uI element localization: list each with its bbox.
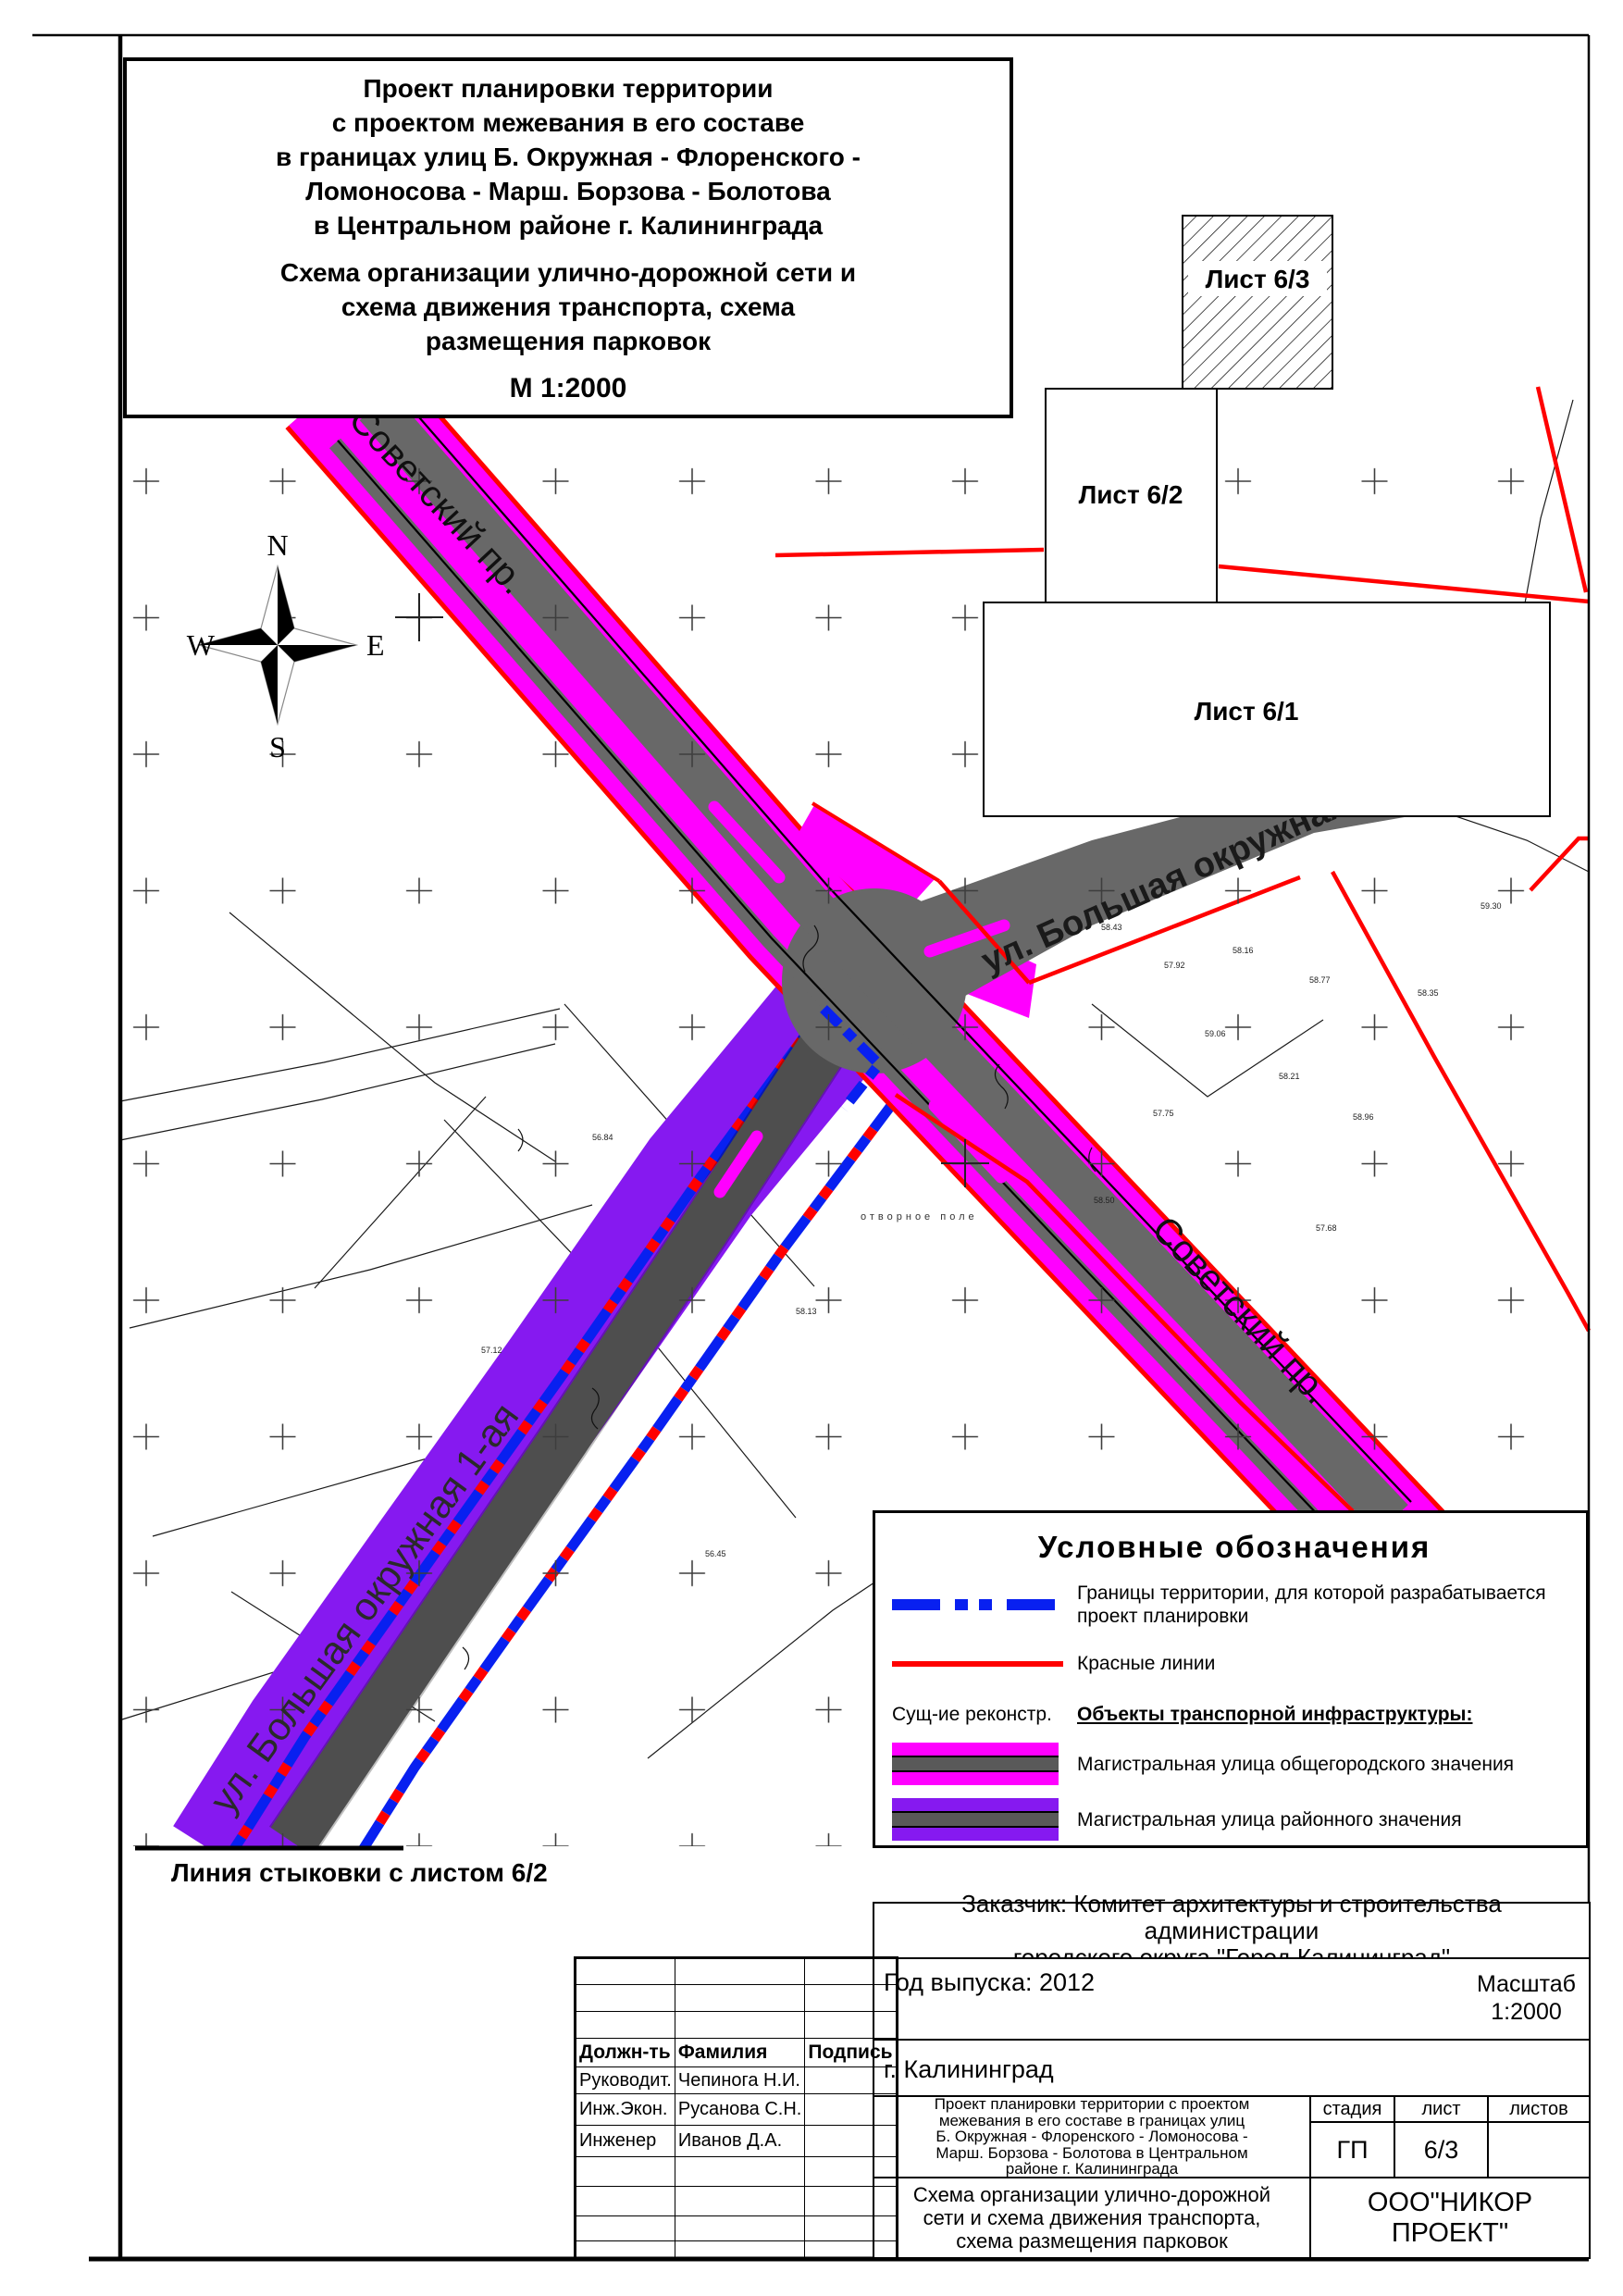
compass-e: E [366, 628, 385, 662]
planning-sheet: { "header": { "lines": [ "Проект планиро… [0, 0, 1623, 2296]
sheet-62-label: Лист 6/2 [1079, 480, 1183, 509]
red-line-symbol [892, 1659, 1077, 1669]
elevation-label: 57.68 [1316, 1223, 1337, 1233]
elevation-label: 58.35 [1418, 988, 1439, 998]
legend-item-redlines: Красные линии [892, 1652, 1569, 1675]
title-line: Ломоносова - Марш. Борзова - Болотова [305, 174, 831, 208]
project-line: Проект планировки территории с проектом [935, 2096, 1250, 2113]
personnel-row: Руководит. Чепинога Н.И. [576, 2067, 898, 2094]
elevation-label: 59.30 [1481, 901, 1502, 911]
listov-value [1487, 2121, 1591, 2178]
map-scale-label: М 1:2000 [510, 373, 627, 404]
title-line: в Центральном районе г. Калининграда [314, 208, 823, 242]
col-signature: Подпись [805, 2039, 897, 2067]
elevation-label: 58.96 [1353, 1112, 1374, 1122]
stadia-header: стадия [1309, 2095, 1395, 2123]
scheme-line: Схема организации улично-дорожной [913, 2183, 1270, 2206]
subtitle-line: Схема организации улично-дорожной сети и [280, 255, 856, 290]
scale-value: 1:2000 [1477, 1998, 1576, 2026]
field-label: отворное поле [861, 1211, 978, 1222]
year-cell: Год выпуска: 2012 Масштаб 1:2000 [873, 1957, 1591, 2041]
stadia-value: ГП [1309, 2121, 1395, 2178]
boundary-line-symbol [892, 1598, 1077, 1611]
elevation-label: 58.16 [1233, 946, 1254, 955]
subtitle-line: размещения парковок [426, 324, 711, 358]
listov-header: листов [1487, 2095, 1591, 2123]
project-line: Марш. Борзова - Болотова в Центральном [935, 2145, 1247, 2162]
elevation-label: 58.43 [1101, 923, 1122, 932]
sheet-61-label: Лист 6/1 [1195, 697, 1299, 726]
legend-item-district: Магистральная улица районного значения [892, 1798, 1569, 1841]
project-line: районе г. Калининграда [1006, 2161, 1179, 2178]
elevation-label: 57.92 [1164, 961, 1185, 970]
company-cell: ООО"НИКОР ПРОЕКТ" [1309, 2177, 1591, 2259]
project-line: Б. Окружная - Флоренского - Ломоносова - [935, 2128, 1247, 2145]
legend-text: Магистральная улица общегородского значе… [1077, 1753, 1514, 1776]
city-cell: г. Калининград [873, 2039, 1591, 2097]
personnel-row: Инж.Экон. Русанова С.Н. [576, 2094, 898, 2126]
elevation-label: 58.21 [1279, 1072, 1300, 1081]
compass-w: W [187, 628, 216, 662]
sheet-61-box: Лист 6/1 [984, 602, 1550, 816]
list-header: лист [1394, 2095, 1489, 2123]
col-position: Должн-ть [576, 2039, 675, 2067]
legend-title: Условные обозначения [899, 1530, 1569, 1565]
legend-text: Красные линии [1077, 1652, 1215, 1675]
compass-s: S [269, 730, 286, 763]
legend-item-objects: Сущ-ие реконстр. Объекты транспорной инф… [892, 1703, 1569, 1726]
elevation-label: 58.77 [1309, 975, 1331, 985]
customer-line: Заказчик: Комитет архитектуры и строител… [874, 1891, 1589, 1944]
legend-text: Магистральная улица районного значения [1077, 1808, 1462, 1831]
objects-header: Объекты транспорной инфраструктуры: [1077, 1703, 1472, 1726]
existing-reconstr-label: Сущ-ие реконстр. [892, 1703, 1077, 1726]
legend-item-boundary: Границы территории, для которой разрабат… [892, 1582, 1569, 1628]
compass-n: N [266, 528, 288, 562]
list-value: 6/3 [1394, 2121, 1489, 2178]
elevation-label: 56.45 [705, 1549, 726, 1558]
personnel-header-row: Должн-ть Фамилия Подпись [576, 2039, 898, 2067]
legend-text: Границы территории, для которой разрабат… [1077, 1582, 1546, 1605]
year-value: Год выпуска: 2012 [884, 1968, 1095, 1997]
elevation-label: 58.13 [796, 1307, 817, 1316]
sheet-62-box: Лист 6/2 [1046, 389, 1217, 602]
legend-box: Условные обозначения Границы территории,… [873, 1510, 1589, 1848]
scheme-name-cell: Схема организации улично-дорожной сети и… [873, 2177, 1311, 2259]
elevation-label: 57.12 [481, 1346, 502, 1355]
project-name-cell: Проект планировки территории с проектом … [873, 2095, 1311, 2178]
legend-text: проект планировки [1077, 1605, 1546, 1628]
citywide-street-symbol [892, 1743, 1077, 1785]
title-line: в границах улиц Б. Окружная - Флоренског… [276, 140, 861, 174]
district-street-symbol [892, 1798, 1077, 1841]
title-line: Проект планировки территории [364, 71, 774, 105]
title-box: Проект планировки территории с проектом … [123, 57, 1013, 418]
personnel-row: Инженер Иванов Д.А. [576, 2126, 898, 2157]
scheme-line: сети и схема движения транспорта, [923, 2206, 1261, 2229]
col-surname: Фамилия [675, 2039, 805, 2067]
scale-word: Масштаб [1477, 1970, 1576, 1998]
city-value: г. Калининград [884, 2055, 1054, 2084]
personnel-table: Должн-ть Фамилия Подпись Руководит. Чепи… [574, 1956, 898, 2260]
subtitle-line: схема движения транспорта, схема [341, 290, 795, 324]
scheme-line: схема размещения парковок [956, 2229, 1227, 2253]
title-line: с проектом межевания в его составе [332, 105, 805, 140]
elevation-label: 59.06 [1205, 1029, 1226, 1038]
elevation-label: 57.75 [1153, 1109, 1174, 1118]
elevation-label: 56.84 [592, 1133, 613, 1142]
elevation-label: 58.50 [1094, 1196, 1115, 1205]
customer-cell: Заказчик: Комитет архитектуры и строител… [873, 1902, 1591, 1959]
joint-line-label: Линия стыковки с листом 6/2 [171, 1858, 548, 1888]
sheet-63-box: Лист 6/3 [1183, 216, 1332, 389]
sheet-63-label: Лист 6/3 [1206, 265, 1310, 293]
legend-item-citywide: Магистральная улица общегородского значе… [892, 1743, 1569, 1785]
project-line: межевания в его составе в границах улиц [939, 2113, 1245, 2129]
scale-block: Масштаб 1:2000 [1477, 1970, 1576, 2026]
